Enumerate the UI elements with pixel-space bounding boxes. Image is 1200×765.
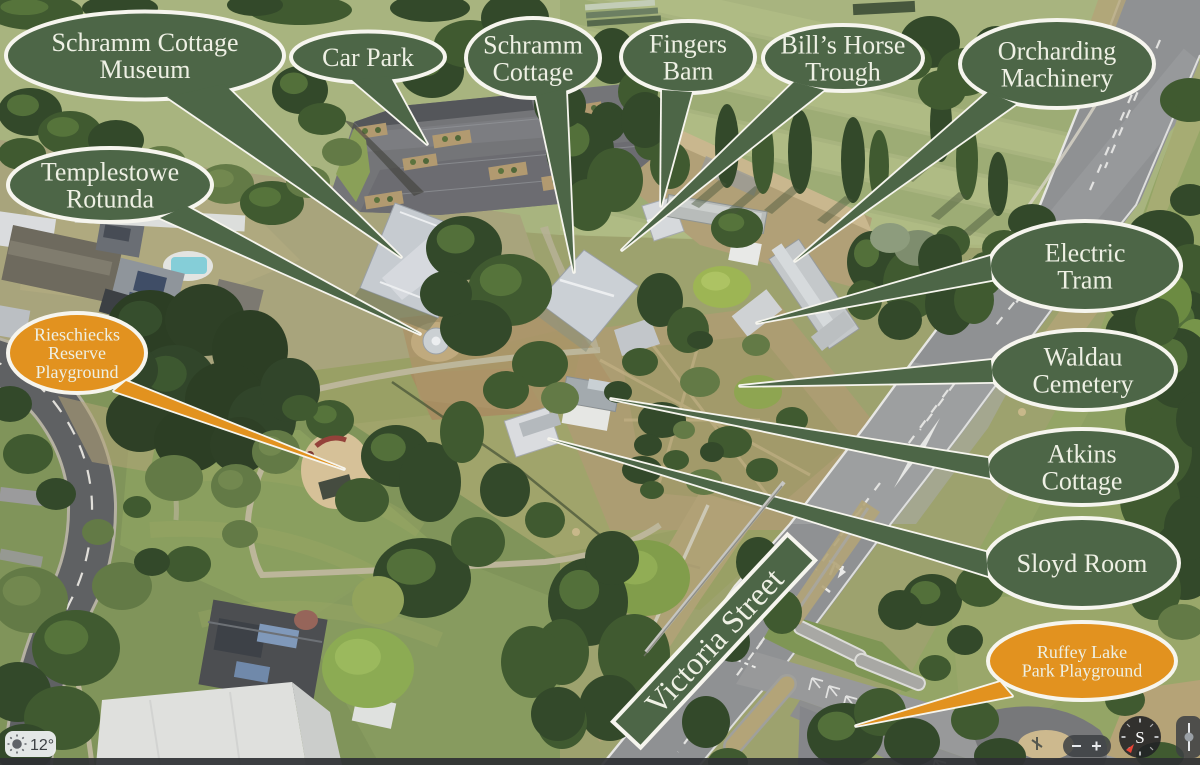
- svg-text:Bill’s Horse: Bill’s Horse: [781, 30, 906, 59]
- svg-text:Machinery: Machinery: [1001, 63, 1114, 92]
- svg-text:Rotunda: Rotunda: [66, 184, 155, 213]
- svg-text:Barn: Barn: [663, 56, 714, 85]
- svg-text:Cottage: Cottage: [493, 57, 574, 86]
- svg-text:Car Park: Car Park: [322, 43, 414, 72]
- svg-text:Ruffey Lake: Ruffey Lake: [1037, 642, 1127, 662]
- svg-text:Schramm: Schramm: [483, 30, 583, 59]
- svg-text:Electric: Electric: [1045, 238, 1126, 267]
- svg-text:Rieschiecks: Rieschiecks: [34, 324, 120, 344]
- svg-text:Sloyd Room: Sloyd Room: [1017, 549, 1148, 578]
- svg-text:Fingers: Fingers: [649, 29, 727, 58]
- svg-text:Cottage: Cottage: [1042, 466, 1123, 495]
- svg-text:Playground: Playground: [36, 362, 119, 382]
- svg-text:Reserve: Reserve: [48, 343, 106, 363]
- svg-text:Atkins: Atkins: [1047, 439, 1116, 468]
- svg-text:12°: 12°: [30, 737, 54, 754]
- svg-text:Trough: Trough: [805, 57, 881, 86]
- svg-text:Park Playground: Park Playground: [1022, 661, 1143, 681]
- svg-text:Cemetery: Cemetery: [1032, 369, 1133, 398]
- svg-text:Museum: Museum: [100, 55, 191, 84]
- svg-text:Schramm Cottage: Schramm Cottage: [51, 28, 238, 57]
- svg-text:S: S: [1135, 728, 1144, 747]
- svg-text:Tram: Tram: [1057, 265, 1112, 294]
- svg-text:Templestowe: Templestowe: [41, 157, 179, 186]
- svg-text:Waldau: Waldau: [1044, 342, 1123, 371]
- svg-text:Orcharding: Orcharding: [998, 36, 1116, 65]
